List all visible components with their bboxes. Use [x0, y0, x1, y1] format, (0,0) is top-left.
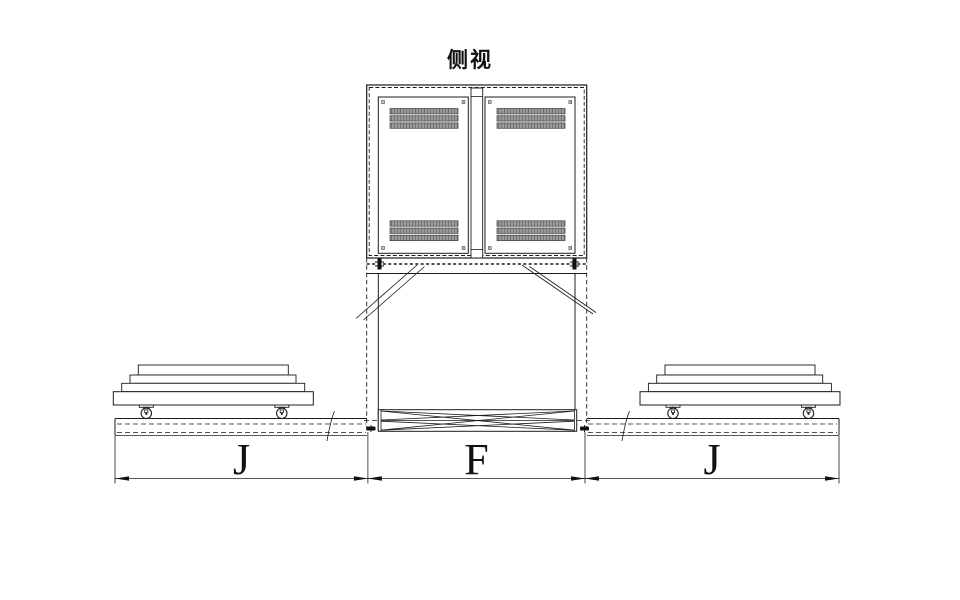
screw-icon: [462, 101, 465, 104]
screw-icon: [569, 247, 572, 250]
dimension-label-center: F: [464, 435, 488, 484]
drawing-canvas: 侧视: [0, 0, 960, 600]
bolt-left: [375, 259, 384, 270]
dimension-annotations: J F J: [115, 432, 839, 484]
break-mark-left: [327, 411, 335, 441]
right-panel-trolley: [640, 365, 840, 419]
screw-icon: [462, 247, 465, 250]
screw-icon: [488, 101, 491, 104]
break-mark-right: [622, 411, 630, 441]
right-door-top-vent: [497, 109, 565, 129]
screw-icon: [569, 101, 572, 104]
technical-drawing-side-view: 侧视: [0, 0, 960, 600]
support-stand: [356, 258, 596, 432]
view-title: 侧视: [447, 48, 493, 72]
screw-icon: [382, 101, 385, 104]
right-door-bottom-vent: [497, 221, 565, 241]
base-cross-brace: [364, 410, 590, 432]
anchor-bolt-left: [367, 425, 376, 432]
door-mullion: [471, 88, 483, 258]
left-door: [378, 97, 468, 253]
screw-icon: [382, 247, 385, 250]
dimension-label-left: J: [233, 435, 250, 484]
dimension-label-right: J: [703, 435, 720, 484]
anchor-bolt-right: [580, 425, 589, 432]
left-panel-trolley: [113, 365, 313, 419]
screw-icon: [488, 247, 491, 250]
left-door-top-vent: [390, 109, 458, 129]
left-door-bottom-vent: [390, 221, 458, 241]
cabinet: [367, 85, 587, 258]
right-door: [485, 97, 575, 253]
